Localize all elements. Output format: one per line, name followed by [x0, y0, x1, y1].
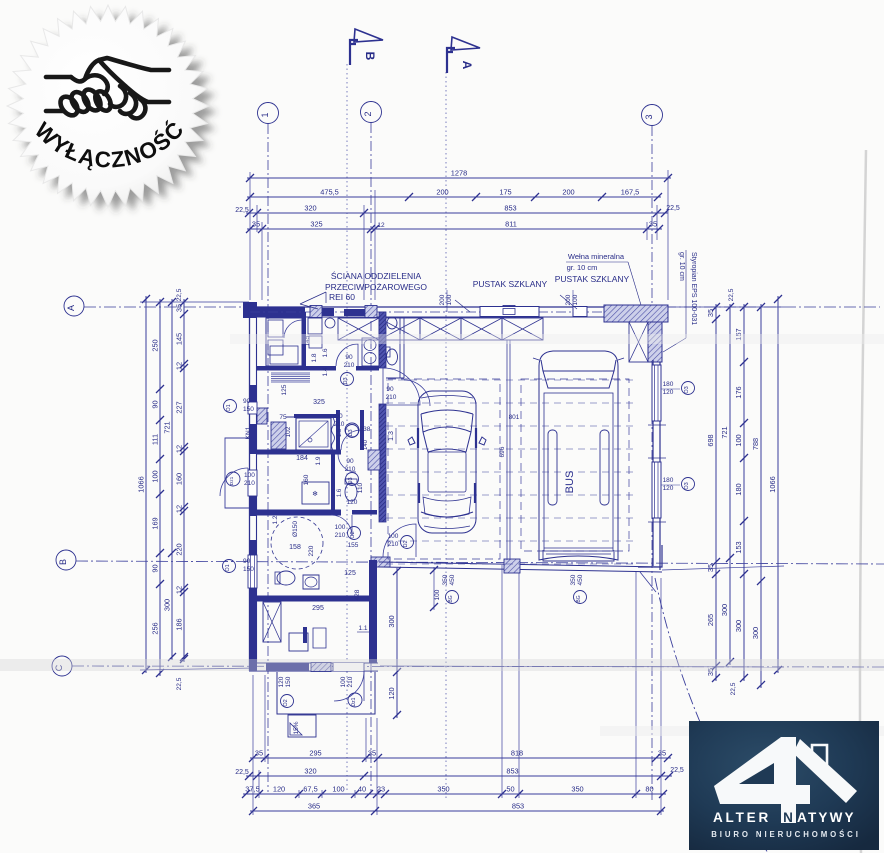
- svg-text:140: 140: [363, 439, 369, 450]
- svg-text:120: 120: [387, 687, 396, 699]
- svg-text:125: 125: [281, 384, 288, 395]
- svg-text:120: 120: [663, 485, 674, 492]
- svg-text:220: 220: [308, 545, 315, 556]
- svg-text:PUSTAK SZKLANY: PUSTAK SZKLANY: [473, 279, 548, 289]
- svg-text:158: 158: [289, 544, 301, 551]
- svg-text:120: 120: [278, 676, 285, 687]
- svg-text:150: 150: [243, 566, 254, 573]
- svg-text:100: 100: [340, 676, 347, 687]
- svg-text:90: 90: [151, 400, 160, 408]
- svg-text:22,5: 22,5: [176, 288, 183, 301]
- svg-text:475,5: 475,5: [320, 188, 339, 197]
- svg-text:KN1: KN1: [245, 426, 252, 439]
- svg-text:350: 350: [442, 574, 449, 585]
- svg-text:210: 210: [345, 466, 356, 473]
- svg-text:1.3: 1.3: [388, 431, 395, 441]
- svg-text:REI 60: REI 60: [329, 292, 355, 302]
- svg-text:853: 853: [506, 767, 518, 776]
- svg-text:A: A: [66, 305, 76, 311]
- svg-text:1.5: 1.5: [337, 428, 343, 437]
- svg-text:1.8: 1.8: [311, 353, 318, 362]
- svg-text:90: 90: [386, 386, 394, 393]
- svg-text:102: 102: [285, 426, 292, 437]
- svg-text:22,5: 22,5: [235, 207, 249, 214]
- svg-text:BIURO NIERUCHOMOŚCI: BIURO NIERUCHOMOŚCI: [711, 830, 861, 839]
- svg-text:300: 300: [163, 599, 172, 611]
- svg-text:110: 110: [357, 482, 364, 493]
- svg-text:O2: O2: [350, 531, 356, 538]
- svg-text:gr. 10 cm: gr. 10 cm: [567, 263, 598, 272]
- svg-text:35: 35: [658, 749, 666, 758]
- svg-text:155: 155: [348, 542, 359, 549]
- svg-text:180: 180: [734, 483, 743, 495]
- svg-text:90: 90: [335, 413, 343, 420]
- svg-text:200: 200: [436, 188, 448, 197]
- svg-text:100: 100: [244, 472, 255, 479]
- svg-text:350: 350: [570, 574, 577, 585]
- svg-text:❄: ❄: [312, 490, 318, 498]
- svg-text:300: 300: [387, 615, 396, 627]
- svg-text:365: 365: [308, 802, 320, 811]
- svg-text:295: 295: [309, 749, 321, 758]
- svg-text:A: A: [460, 61, 474, 70]
- svg-text:1.6: 1.6: [322, 348, 329, 357]
- svg-text:2: 2: [363, 111, 373, 116]
- svg-text:145: 145: [175, 333, 184, 345]
- svg-text:Ø150: Ø150: [292, 521, 299, 537]
- svg-text:12: 12: [175, 505, 184, 513]
- svg-text:PRZECIWPOŻAROWEGO: PRZECIWPOŻAROWEGO: [325, 282, 427, 292]
- svg-text:1.6: 1.6: [337, 488, 343, 497]
- svg-text:ŚCIANA ODDZIELENIA: ŚCIANA ODDZIELENIA: [331, 270, 422, 281]
- svg-text:184: 184: [296, 455, 308, 462]
- svg-text:12: 12: [175, 445, 184, 453]
- svg-text:210: 210: [386, 394, 397, 401]
- svg-text:120: 120: [347, 499, 358, 506]
- svg-text:1.4: 1.4: [322, 367, 329, 376]
- svg-text:295: 295: [312, 605, 324, 612]
- svg-text:B: B: [58, 559, 68, 565]
- svg-text:1278: 1278: [451, 169, 467, 178]
- svg-text:12: 12: [377, 222, 385, 229]
- svg-text:210: 210: [244, 480, 255, 487]
- svg-text:853: 853: [512, 802, 524, 811]
- svg-text:153: 153: [734, 541, 743, 553]
- svg-text:1.1: 1.1: [358, 625, 367, 632]
- svg-text:Styropian EPS 100-031: Styropian EPS 100-031: [690, 252, 697, 325]
- svg-text:150: 150: [285, 676, 292, 687]
- svg-text:40: 40: [358, 785, 366, 794]
- svg-text:1: 1: [260, 112, 270, 117]
- svg-text:ATYWY: ATYWY: [797, 810, 856, 825]
- svg-text:37,5: 37,5: [245, 785, 259, 794]
- svg-text:80: 80: [645, 785, 653, 794]
- svg-text:210: 210: [335, 532, 346, 539]
- svg-text:N: N: [783, 810, 793, 825]
- svg-text:176: 176: [734, 386, 743, 398]
- svg-text:3: 3: [644, 114, 654, 119]
- svg-text:210: 210: [334, 421, 345, 428]
- svg-text:125: 125: [344, 570, 356, 577]
- svg-text:200: 200: [565, 294, 572, 305]
- svg-text:300: 300: [720, 604, 729, 616]
- svg-text:1.9: 1.9: [315, 456, 322, 465]
- svg-text:BUS: BUS: [564, 471, 576, 494]
- svg-text:O2: O2: [283, 699, 289, 706]
- svg-text:801: 801: [509, 414, 520, 421]
- svg-text:788: 788: [751, 438, 760, 450]
- svg-text:22,5: 22,5: [235, 769, 249, 776]
- svg-text:100: 100: [388, 533, 399, 540]
- svg-text:D3: D3: [343, 377, 349, 384]
- svg-text:325: 325: [313, 399, 325, 406]
- svg-text:90: 90: [346, 458, 354, 465]
- svg-text:67,5: 67,5: [303, 785, 317, 794]
- svg-text:210: 210: [347, 676, 354, 687]
- svg-text:175: 175: [499, 188, 511, 197]
- svg-text:1066: 1066: [768, 476, 777, 492]
- svg-text:100: 100: [734, 434, 743, 446]
- svg-text:100: 100: [335, 524, 346, 531]
- svg-text:Dz1: Dz1: [351, 697, 357, 706]
- svg-text:210: 210: [344, 362, 355, 369]
- svg-text:35: 35: [368, 749, 376, 758]
- svg-text:O1: O1: [226, 404, 232, 411]
- svg-text:90: 90: [243, 398, 251, 405]
- svg-text:1066: 1066: [137, 476, 146, 492]
- svg-text:150: 150: [243, 406, 254, 413]
- svg-text:227: 227: [175, 401, 184, 413]
- svg-text:721: 721: [163, 421, 172, 433]
- svg-text:B: B: [363, 52, 377, 61]
- svg-text:O3: O3: [684, 386, 690, 393]
- svg-text:BG: BG: [448, 595, 454, 602]
- svg-text:100: 100: [151, 470, 160, 482]
- svg-text:721: 721: [720, 426, 729, 438]
- svg-text:450: 450: [577, 574, 584, 585]
- svg-text:256: 256: [151, 622, 160, 634]
- svg-text:210: 210: [388, 541, 399, 548]
- svg-text:325: 325: [310, 220, 322, 229]
- svg-text:12: 12: [175, 362, 184, 370]
- svg-text:100: 100: [332, 785, 344, 794]
- svg-text:265: 265: [706, 614, 715, 626]
- svg-text:35: 35: [649, 220, 657, 229]
- svg-text:1.2: 1.2: [272, 515, 279, 524]
- svg-text:238: 238: [360, 426, 371, 433]
- svg-text:320: 320: [304, 204, 316, 213]
- svg-text:75: 75: [279, 414, 287, 421]
- svg-text:120: 120: [273, 785, 285, 794]
- svg-text:160: 160: [175, 473, 184, 485]
- svg-text:D2: D2: [403, 540, 409, 547]
- svg-text:35: 35: [175, 304, 184, 312]
- svg-text:167,5: 167,5: [621, 188, 640, 197]
- svg-text:200: 200: [562, 188, 574, 197]
- svg-text:22,5: 22,5: [670, 767, 684, 774]
- svg-text:D3: D3: [348, 429, 354, 436]
- svg-text:120: 120: [663, 389, 674, 396]
- svg-text:23: 23: [377, 785, 385, 794]
- svg-text:250: 250: [151, 339, 160, 351]
- svg-text:180: 180: [663, 381, 674, 388]
- svg-text:ALTER: ALTER: [713, 810, 771, 825]
- svg-text:350: 350: [571, 785, 583, 794]
- svg-text:320: 320: [304, 767, 316, 776]
- svg-text:22,5: 22,5: [728, 288, 735, 301]
- svg-text:12: 12: [175, 586, 184, 594]
- svg-text:428: 428: [354, 589, 361, 600]
- svg-text:35: 35: [706, 309, 715, 317]
- svg-text:853: 853: [504, 204, 516, 213]
- svg-text:698: 698: [706, 434, 715, 446]
- svg-text:O1: O1: [225, 564, 231, 571]
- svg-text:450: 450: [449, 574, 456, 585]
- svg-text:186: 186: [175, 618, 184, 630]
- svg-text:111: 111: [151, 434, 160, 445]
- svg-text:D3: D3: [348, 477, 354, 484]
- svg-text:220: 220: [175, 543, 184, 555]
- svg-text:Dz1: Dz1: [229, 476, 235, 485]
- svg-text:100: 100: [434, 589, 441, 600]
- svg-text:300: 300: [734, 620, 743, 632]
- svg-text:PUSTAK SZKLANY: PUSTAK SZKLANY: [555, 274, 630, 284]
- svg-text:169: 169: [151, 517, 160, 529]
- svg-text:90: 90: [345, 354, 353, 361]
- svg-text:180: 180: [663, 477, 674, 484]
- svg-text:818: 818: [511, 749, 523, 758]
- svg-text:811: 811: [505, 220, 517, 229]
- svg-text:Wełna mineralna: Wełna mineralna: [568, 252, 625, 261]
- svg-text:22,5: 22,5: [176, 677, 183, 690]
- svg-text:300: 300: [751, 627, 760, 639]
- svg-text:22,5: 22,5: [730, 682, 737, 695]
- svg-text:696: 696: [499, 446, 506, 457]
- svg-text:35: 35: [252, 220, 260, 229]
- svg-text:90: 90: [243, 558, 251, 565]
- svg-text:O3: O3: [684, 482, 690, 489]
- svg-text:200: 200: [439, 294, 446, 305]
- svg-text:160: 160: [303, 474, 310, 485]
- svg-text:90: 90: [151, 564, 160, 572]
- svg-text:15%: 15%: [293, 721, 300, 734]
- svg-text:35: 35: [255, 749, 263, 758]
- svg-text:BG: BG: [576, 595, 582, 602]
- svg-text:350: 350: [437, 785, 449, 794]
- svg-text:50: 50: [506, 785, 514, 794]
- svg-text:gr. 10 cm: gr. 10 cm: [678, 252, 685, 281]
